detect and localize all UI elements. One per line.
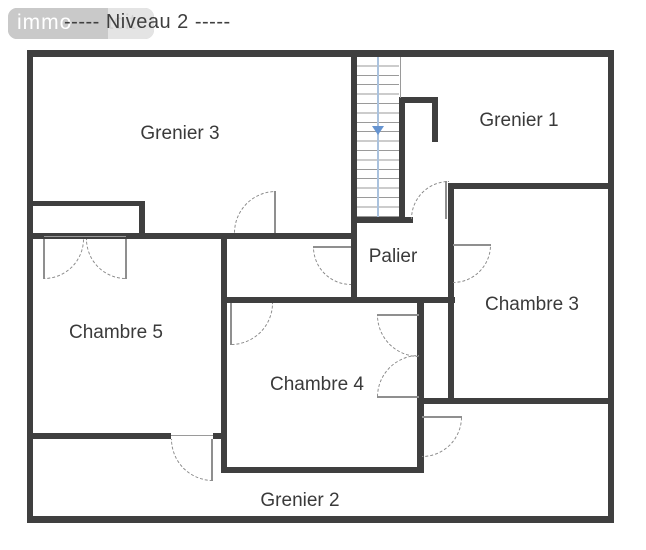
wall-segment (213, 433, 227, 439)
wall-segment (221, 467, 420, 473)
door-swing-arc (313, 247, 351, 285)
wall-segment (417, 398, 614, 404)
door-swing-arc (453, 245, 491, 283)
room-label-palier: Palier (353, 245, 433, 269)
wall-segment (608, 50, 614, 523)
door-threshold (171, 435, 213, 436)
wall-segment (33, 201, 145, 206)
wall-segment (27, 516, 614, 523)
room-label-chambre-5: Chambre 5 (46, 321, 186, 345)
wall-segment (448, 183, 614, 189)
staircase-edge (400, 57, 401, 98)
staircase-direction-line (377, 57, 379, 217)
wall-segment (27, 50, 614, 57)
wall-segment (432, 97, 438, 142)
door-swing-arc (377, 315, 419, 357)
room-label-grenier-2: Grenier 2 (230, 489, 370, 513)
room-label-grenier-3: Grenier 3 (110, 122, 250, 146)
door-swing-arc (86, 239, 126, 279)
door-swing-arc (422, 417, 462, 457)
door-swing-arc (44, 239, 84, 279)
door-swing-arc (411, 181, 449, 219)
wall-segment (399, 97, 405, 223)
room-label-chambre-4: Chambre 4 (247, 373, 387, 397)
door-threshold (44, 236, 126, 237)
room-label-chambre-3: Chambre 3 (462, 293, 602, 317)
door-swing-arc (171, 439, 213, 481)
wall-segment (27, 50, 33, 523)
level-title: ----- Niveau 2 ----- (64, 11, 231, 34)
stairs-down-arrow-icon (372, 126, 384, 135)
door-swing-arc (234, 191, 276, 233)
wall-segment (139, 201, 145, 239)
room-label-grenier-1: Grenier 1 (449, 109, 589, 133)
wall-segment (33, 433, 171, 439)
floorplan-canvas: immo toit ----- Niveau 2 ----- (0, 0, 646, 550)
door-swing-arc (231, 303, 273, 345)
